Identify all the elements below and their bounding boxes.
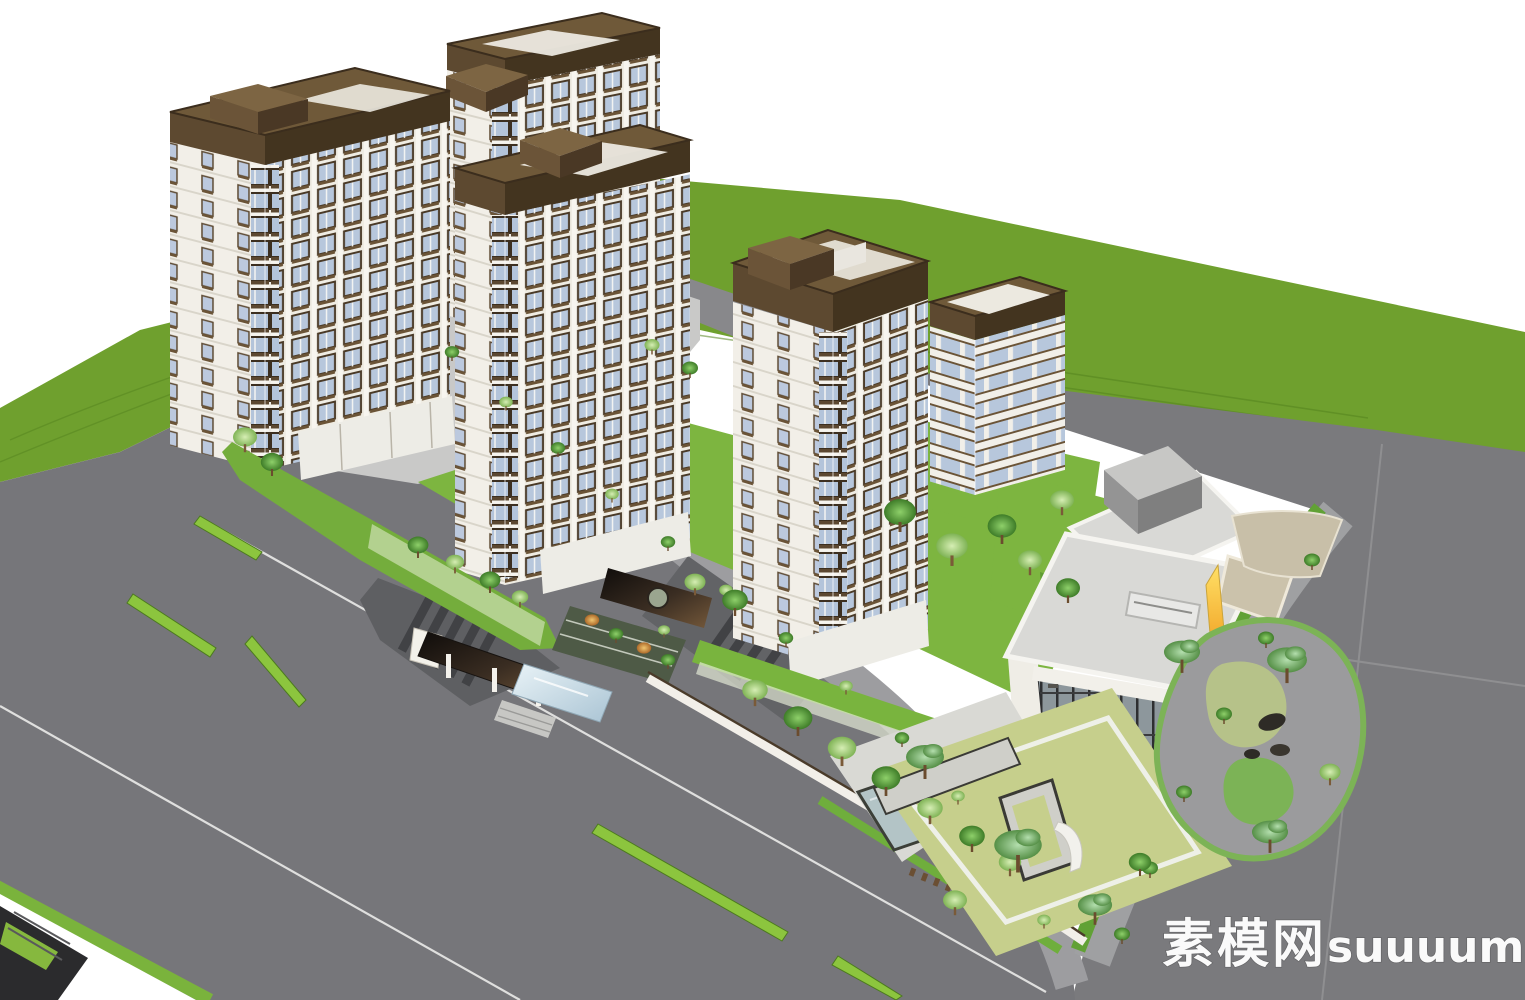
tower-4-facade-left [733, 302, 833, 668]
clubhouse-logo [1048, 684, 1058, 688]
gate-post [492, 668, 497, 692]
tower-5-facade-left [930, 327, 975, 496]
render-canvas: 素模网suuuum.com [0, 0, 1525, 1000]
tower-4 [733, 230, 929, 688]
tower-5 [930, 277, 1065, 495]
tower-5-facade-right [975, 315, 1065, 495]
watermark-latin: suuuum.com [1327, 922, 1525, 973]
tower-1-facade-left [170, 140, 265, 470]
rock [1270, 744, 1290, 756]
tower-3 [455, 125, 691, 594]
rock [1244, 749, 1260, 759]
architectural-render: 素模网suuuum.com [0, 0, 1525, 1000]
svg-text:素模网suuuum.com: 素模网suuuum.com [1162, 915, 1525, 975]
gate-post [446, 654, 451, 678]
pergola-skylight [648, 588, 668, 608]
tower-1 [170, 68, 455, 480]
orange-shrub [585, 614, 599, 625]
orange-shrub [637, 642, 651, 653]
watermark-cn: 素模网 [1162, 915, 1327, 975]
watermark: 素模网suuuum.com [1162, 915, 1525, 975]
